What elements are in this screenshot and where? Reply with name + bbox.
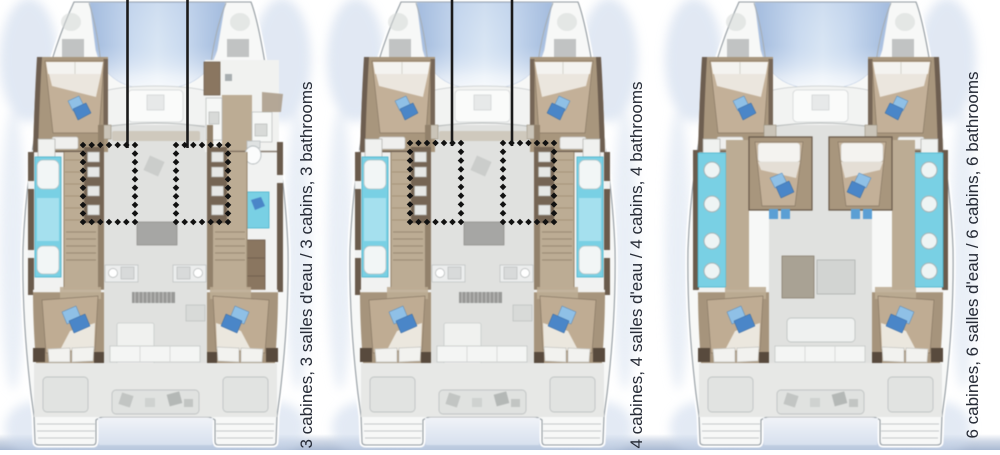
svg-text:4 cabines, 4 salles d'eau / 4: 4 cabines, 4 salles d'eau / 4 cabins, 4 … bbox=[627, 81, 646, 448]
svg-text:3 cabines, 3 salles d'eau / 3: 3 cabines, 3 salles d'eau / 3 cabins, 3 … bbox=[297, 81, 316, 448]
svg-text:6 cabines, 6 salles d'eau / 6: 6 cabines, 6 salles d'eau / 6 cabins, 6 … bbox=[963, 71, 982, 438]
